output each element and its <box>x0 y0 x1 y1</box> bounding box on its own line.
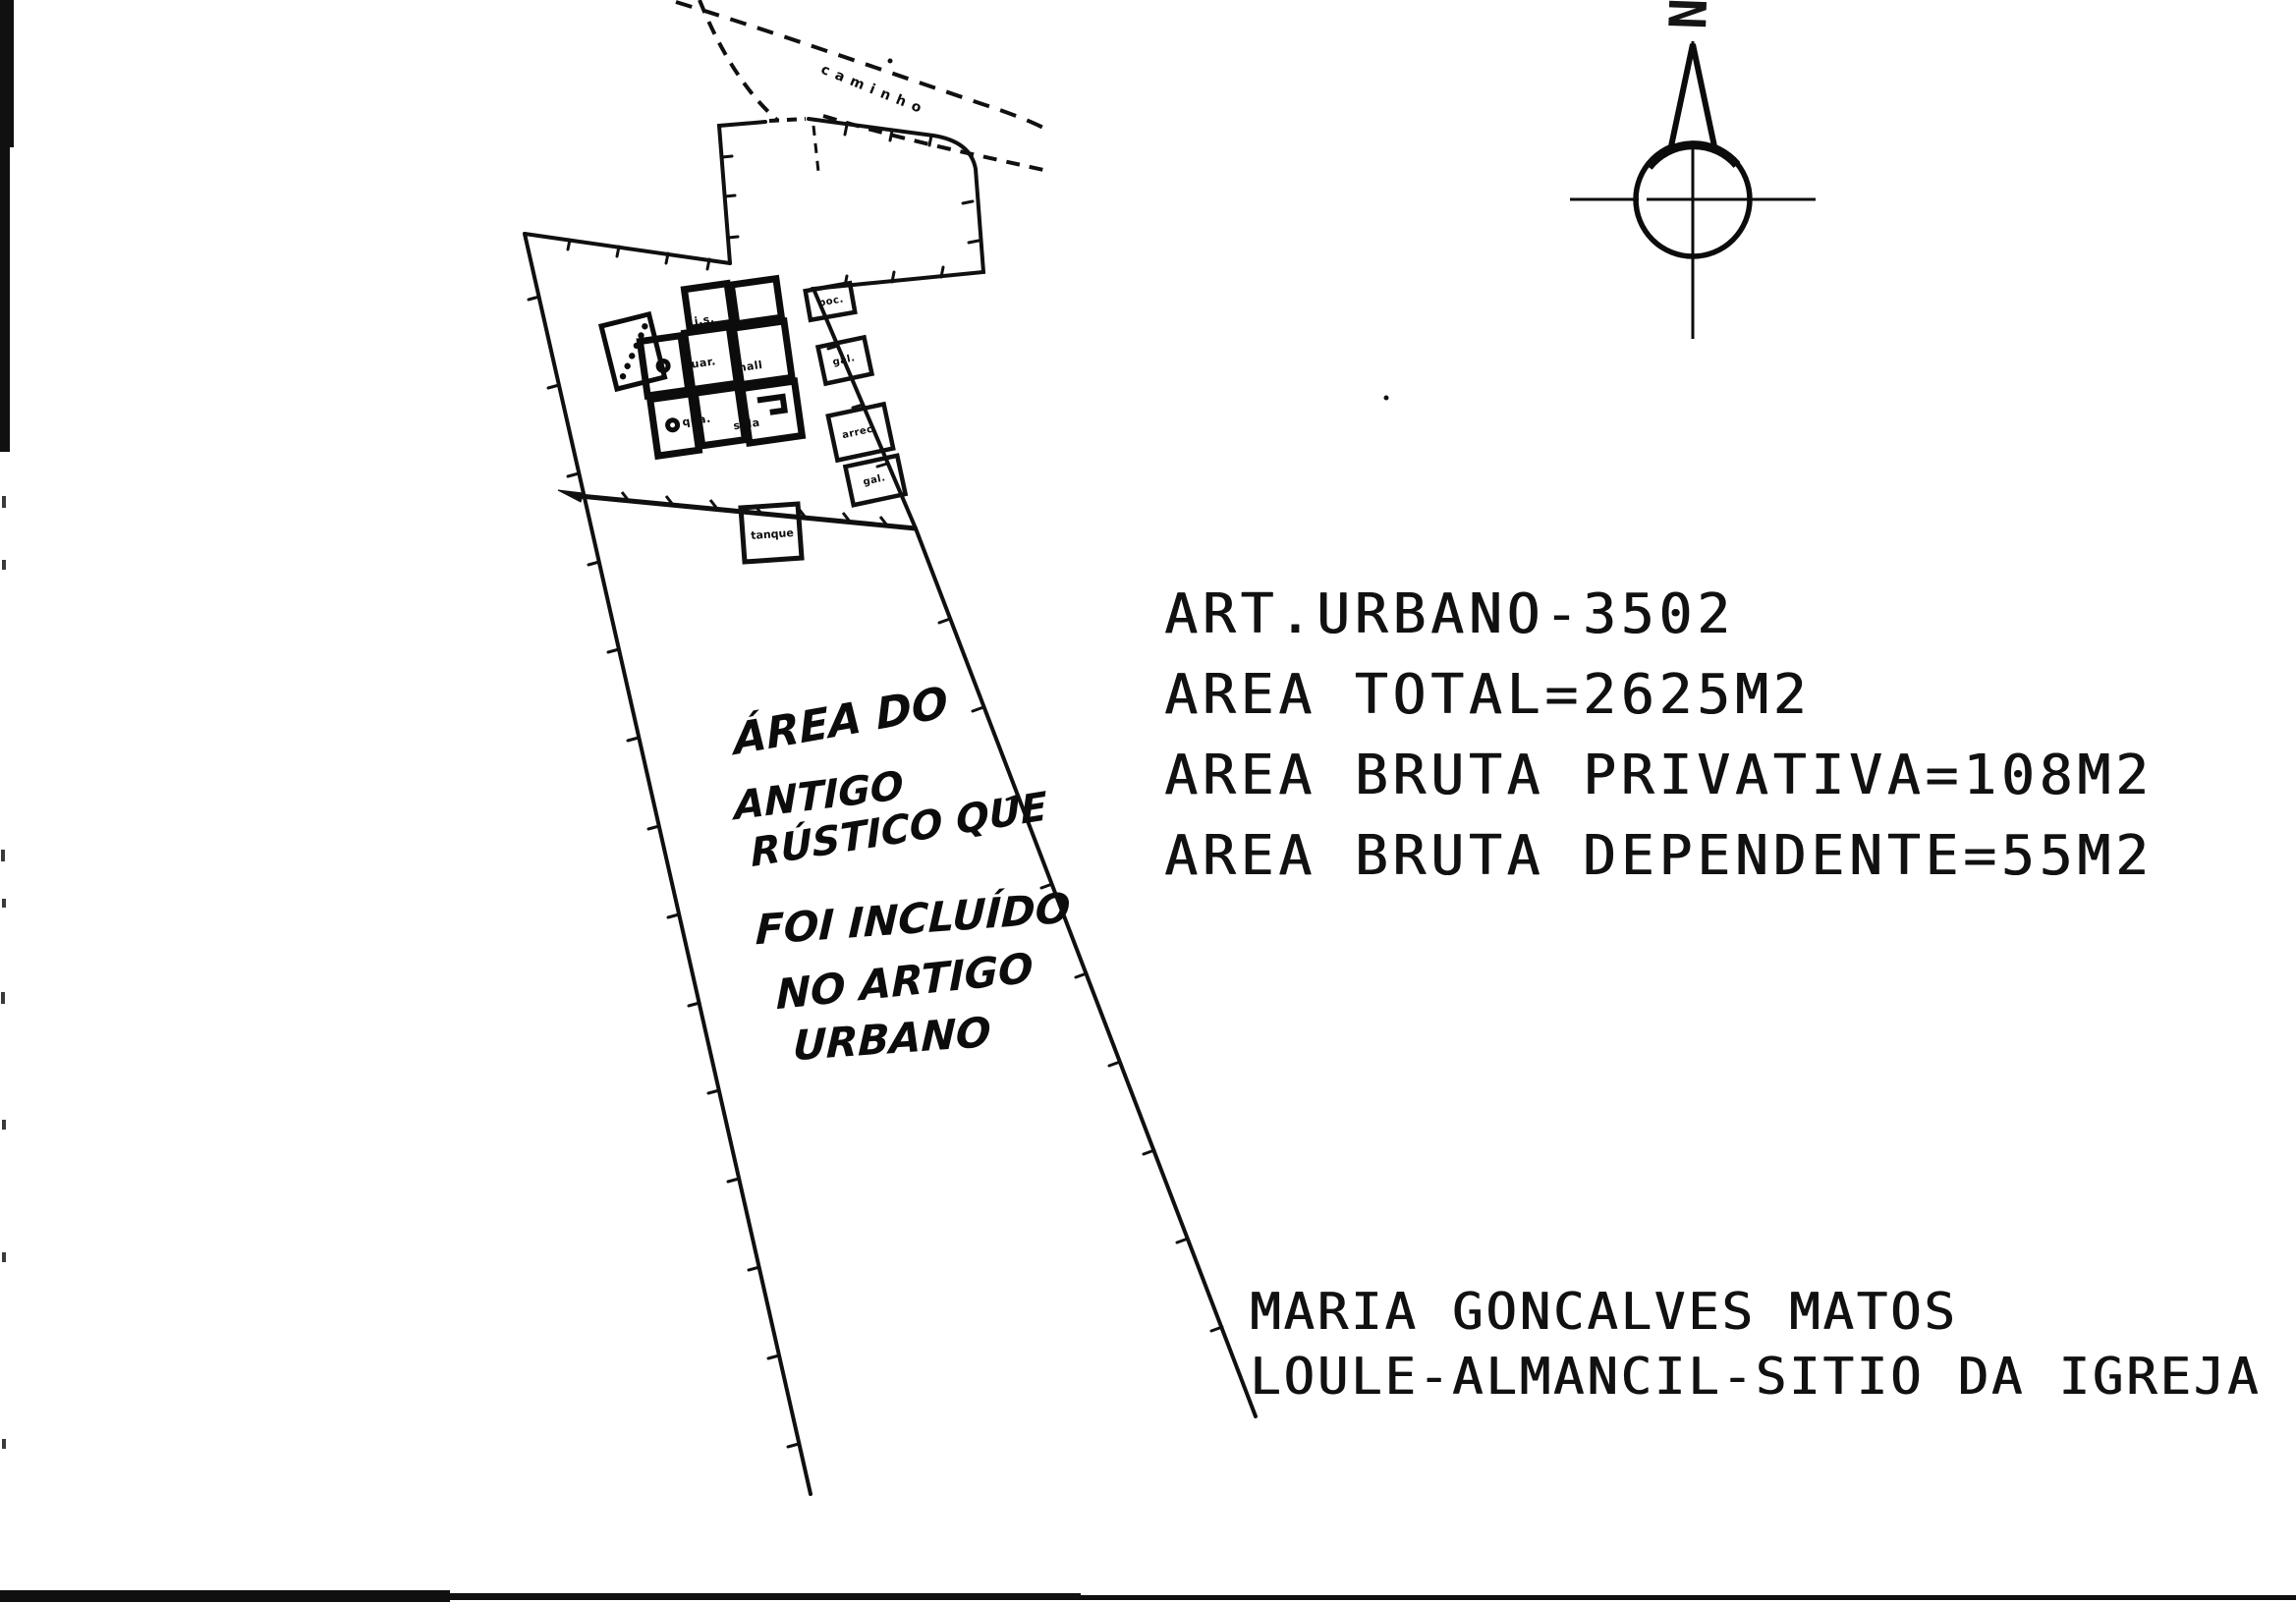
sala-interior-mark <box>757 397 785 414</box>
wall-end-arrow <box>558 490 584 502</box>
scanned-cadastral-plan: caminho N i.s. coz. quar. hall qua. sala… <box>0 0 2296 1603</box>
north-letter: N <box>1655 0 1715 30</box>
annex-outline <box>601 314 664 389</box>
boundary-north-edge <box>525 234 730 263</box>
room-dot-mark-2 <box>667 419 678 430</box>
owner-name: MARIA GONCALVES MATOS <box>1250 1287 1957 1338</box>
typed-line-area-bruta-privativa: AREA BRUTA PRIVATIVA=108M2 <box>1164 748 2154 803</box>
courtyard-west-edge <box>719 122 765 263</box>
typed-line-article: ART.URBANO-3502 <box>1164 587 1735 642</box>
north-compass <box>1570 41 1816 339</box>
gate-gap-dash <box>769 119 806 121</box>
typed-line-area-bruta-dependente: AREA BRUTA DEPENDENTE=55M2 <box>1164 829 2154 884</box>
caminho-lower-left-edge <box>700 0 778 121</box>
gate-connector-dash <box>813 126 818 172</box>
courtyard-north-east-edge <box>809 119 983 528</box>
yard-wall <box>558 490 916 528</box>
typed-line-area-total: AREA TOTAL=2625M2 <box>1164 668 1811 723</box>
north-needle <box>1671 44 1714 146</box>
owner-location: LOULE-ALMANCIL-SITIO DA IGREJA <box>1250 1352 2261 1403</box>
house-floor-plan <box>634 276 802 456</box>
